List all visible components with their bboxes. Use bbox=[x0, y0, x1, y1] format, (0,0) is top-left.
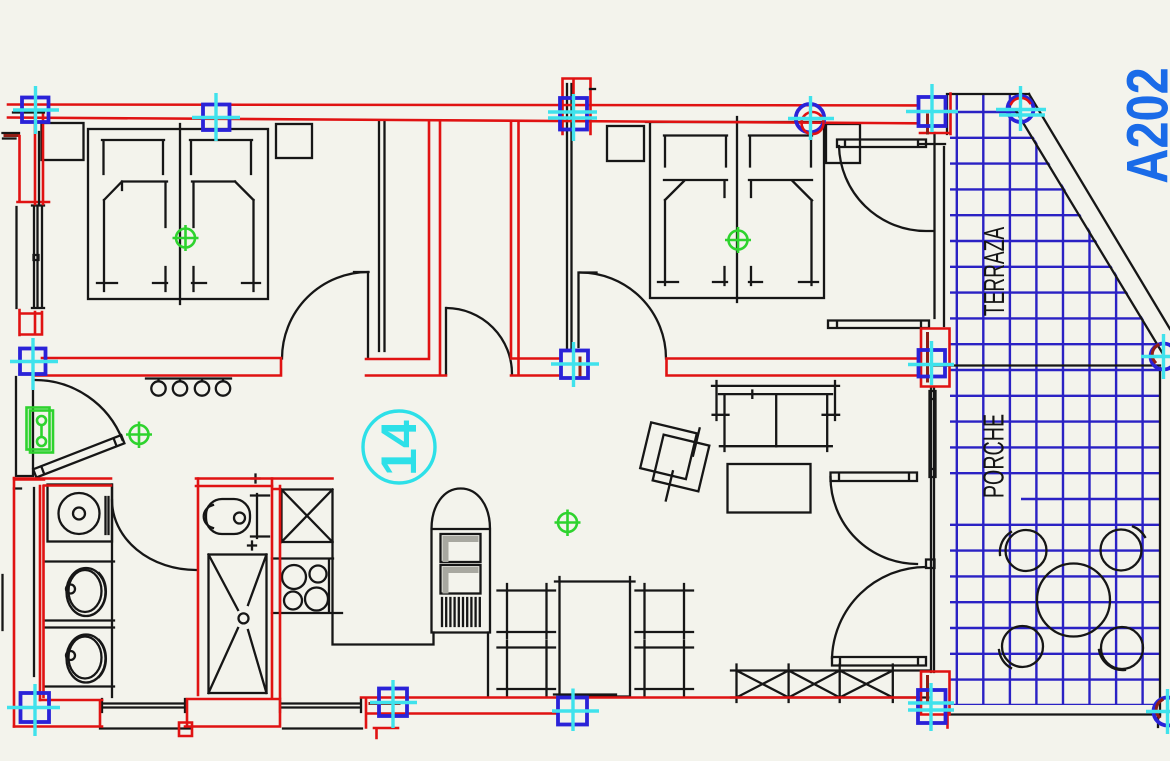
svg-text:14: 14 bbox=[371, 420, 427, 476]
svg-text:TERRAZA: TERRAZA bbox=[979, 226, 1011, 316]
svg-text:A202: A202 bbox=[1117, 67, 1170, 183]
svg-text:PORCHE: PORCHE bbox=[979, 414, 1011, 498]
